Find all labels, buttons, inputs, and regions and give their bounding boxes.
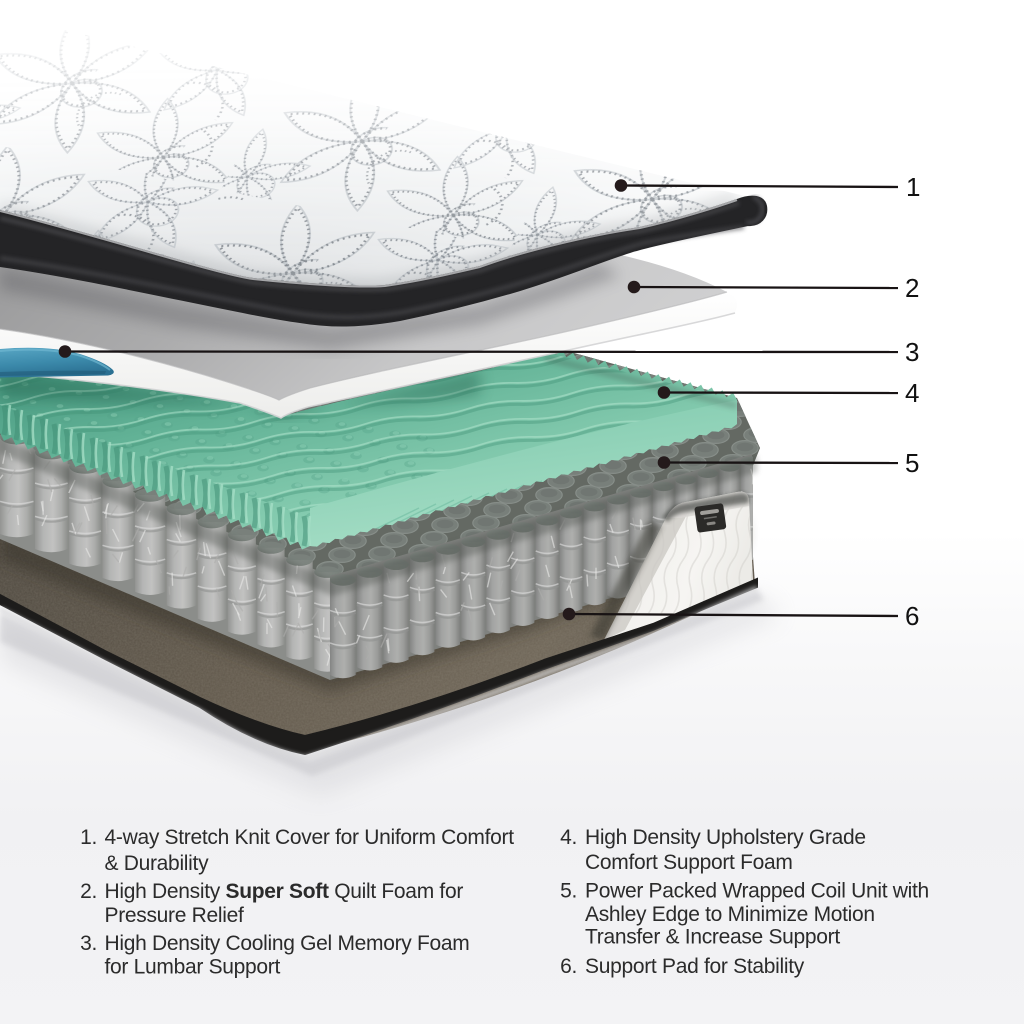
svg-text:Pressure Relief: Pressure Relief — [105, 904, 245, 927]
svg-text:5: 5 — [905, 448, 919, 478]
svg-text:4-way Stretch Knit Cover for U: 4-way Stretch Knit Cover for Uniform Com… — [105, 826, 515, 849]
svg-text:4.: 4. — [560, 826, 577, 849]
svg-text:Power Packed Wrapped Coil Unit: Power Packed Wrapped Coil Unit with — [585, 880, 929, 903]
svg-text:1: 1 — [906, 172, 920, 202]
svg-text:6.: 6. — [560, 955, 577, 978]
svg-text:3.: 3. — [80, 932, 97, 955]
svg-text:High Density Cooling Gel Memor: High Density Cooling Gel Memory Foam — [105, 932, 470, 955]
svg-text:& Durability: & Durability — [105, 852, 210, 875]
svg-text:3: 3 — [905, 337, 919, 367]
svg-text:Comfort Support Foam: Comfort Support Foam — [585, 851, 793, 874]
svg-text:for Lumbar Support: for Lumbar Support — [105, 956, 281, 979]
svg-text:High Density Super Soft Quilt: High Density Super Soft Quilt Foam for — [105, 880, 464, 903]
svg-text:6: 6 — [905, 601, 919, 631]
svg-text:1.: 1. — [80, 826, 97, 849]
svg-text:5.: 5. — [560, 880, 577, 903]
svg-text:2: 2 — [905, 273, 919, 303]
svg-text:4: 4 — [905, 378, 919, 408]
svg-text:High Density Upholstery Grade: High Density Upholstery Grade — [585, 826, 866, 849]
svg-text:Support Pad for Stability: Support Pad for Stability — [585, 955, 805, 978]
svg-text:2.: 2. — [80, 880, 97, 903]
svg-text:Transfer & Increase Support: Transfer & Increase Support — [585, 926, 840, 949]
svg-text:Ashley Edge to Minimize Motion: Ashley Edge to Minimize Motion — [585, 903, 875, 926]
